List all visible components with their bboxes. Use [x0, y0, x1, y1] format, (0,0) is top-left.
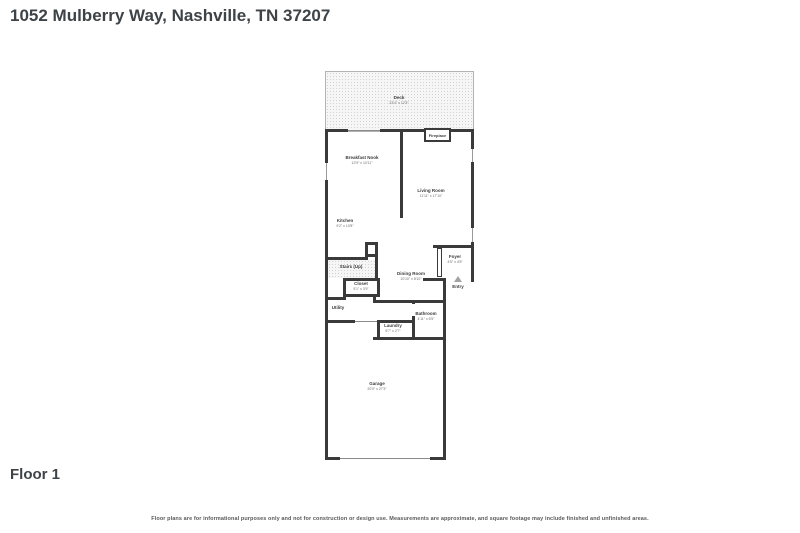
- room-name-living-room: Living Room: [417, 188, 444, 194]
- room-label-garage: Garage 20'0" x 27'3": [367, 381, 386, 391]
- room-name-garage: Garage: [367, 381, 386, 387]
- wall-segment: [325, 297, 346, 300]
- page-title: 1052 Mulberry Way, Nashville, TN 37207: [10, 6, 330, 26]
- wall-segment: [380, 129, 427, 132]
- door-line: [355, 321, 377, 322]
- room-name-laundry: Laundry: [384, 323, 402, 329]
- floor-plan: Fireplace Deck 23'4" x 12'3" Breakfast N…: [325, 71, 474, 460]
- floor-plan-page: 1052 Mulberry Way, Nashville, TN 37207: [0, 0, 800, 533]
- room-name-utility: Utility: [332, 305, 345, 311]
- disclaimer-text: Floor plans are for informational purpos…: [0, 516, 800, 522]
- foyer-door: [437, 248, 442, 277]
- window-line: [326, 163, 327, 180]
- window-line: [472, 228, 473, 242]
- room-dims-bathroom: 4'11" x 6'5": [415, 317, 436, 321]
- wall-segment: [325, 129, 348, 132]
- floor-label: Floor 1: [10, 466, 60, 483]
- garage-door-line: [340, 458, 430, 459]
- wall-segment: [412, 300, 415, 304]
- room-dims-breakfast-nook: 12'9" x 10'11": [345, 161, 378, 165]
- wall-segment: [325, 257, 368, 260]
- room-dims-deck: 23'4" x 12'3": [389, 101, 408, 105]
- wall-segment: [373, 337, 446, 340]
- window-line: [472, 149, 473, 162]
- room-dims-closet: 5'1" x 3'9": [353, 287, 368, 291]
- wall-segment: [443, 278, 446, 460]
- room-label-utility: Utility: [332, 305, 345, 311]
- room-dims-dining-room: 10'10" x 8'10": [397, 277, 425, 281]
- room-label-bathroom: Bathroom 4'11" x 6'5": [415, 311, 436, 321]
- room-dims-living-room: 11'11" x 17'10": [417, 194, 444, 198]
- wall-segment: [325, 457, 340, 460]
- room-name-closet: Closet: [353, 281, 368, 287]
- fireplace-label: Fireplace: [429, 133, 447, 138]
- wall-segment: [400, 129, 403, 218]
- wall-segment: [325, 320, 355, 323]
- fireplace-box: Fireplace: [424, 128, 451, 142]
- room-label-dining-room: Dining Room 10'10" x 8'10": [397, 271, 425, 281]
- room-dims-laundry: 5'7" x 2'7": [384, 329, 402, 333]
- room-label-breakfast-nook: Breakfast Nook 12'9" x 10'11": [345, 155, 378, 165]
- room-dims-garage: 20'0" x 27'3": [367, 387, 386, 391]
- wall-segment: [375, 257, 378, 278]
- room-label-closet: Closet 5'1" x 3'9": [353, 281, 368, 291]
- wall-segment: [430, 457, 446, 460]
- room-name-dining-room: Dining Room: [397, 271, 425, 277]
- room-label-kitchen: Kitchen 9'2" x 10'8": [336, 218, 353, 228]
- room-dims-kitchen: 9'2" x 10'8": [336, 224, 353, 228]
- room-label-laundry: Laundry 5'7" x 2'7": [384, 323, 402, 333]
- sliding-door-line: [348, 130, 380, 131]
- room-label-entry: Entry: [452, 284, 464, 289]
- room-name-foyer: Foyer: [447, 254, 462, 260]
- room-label-living-room: Living Room 11'11" x 17'10": [417, 188, 444, 198]
- wall-segment: [373, 300, 446, 303]
- room-label-deck: Deck 23'4" x 12'3": [389, 95, 408, 105]
- room-name-breakfast-nook: Breakfast Nook: [345, 155, 378, 161]
- room-name-stairs: Stairs (Up): [340, 264, 363, 270]
- wall-segment: [377, 320, 380, 337]
- wall-segment: [423, 278, 446, 281]
- room-name-kitchen: Kitchen: [336, 218, 353, 224]
- pantry-box: [365, 242, 378, 257]
- room-label-foyer: Foyer 4'5" x 4'5": [447, 254, 462, 264]
- room-label-stairs: Stairs (Up): [340, 264, 363, 270]
- entry-direction-icon: [454, 276, 462, 282]
- room-name-bathroom: Bathroom: [415, 311, 436, 317]
- room-dims-foyer: 4'5" x 4'5": [447, 260, 462, 264]
